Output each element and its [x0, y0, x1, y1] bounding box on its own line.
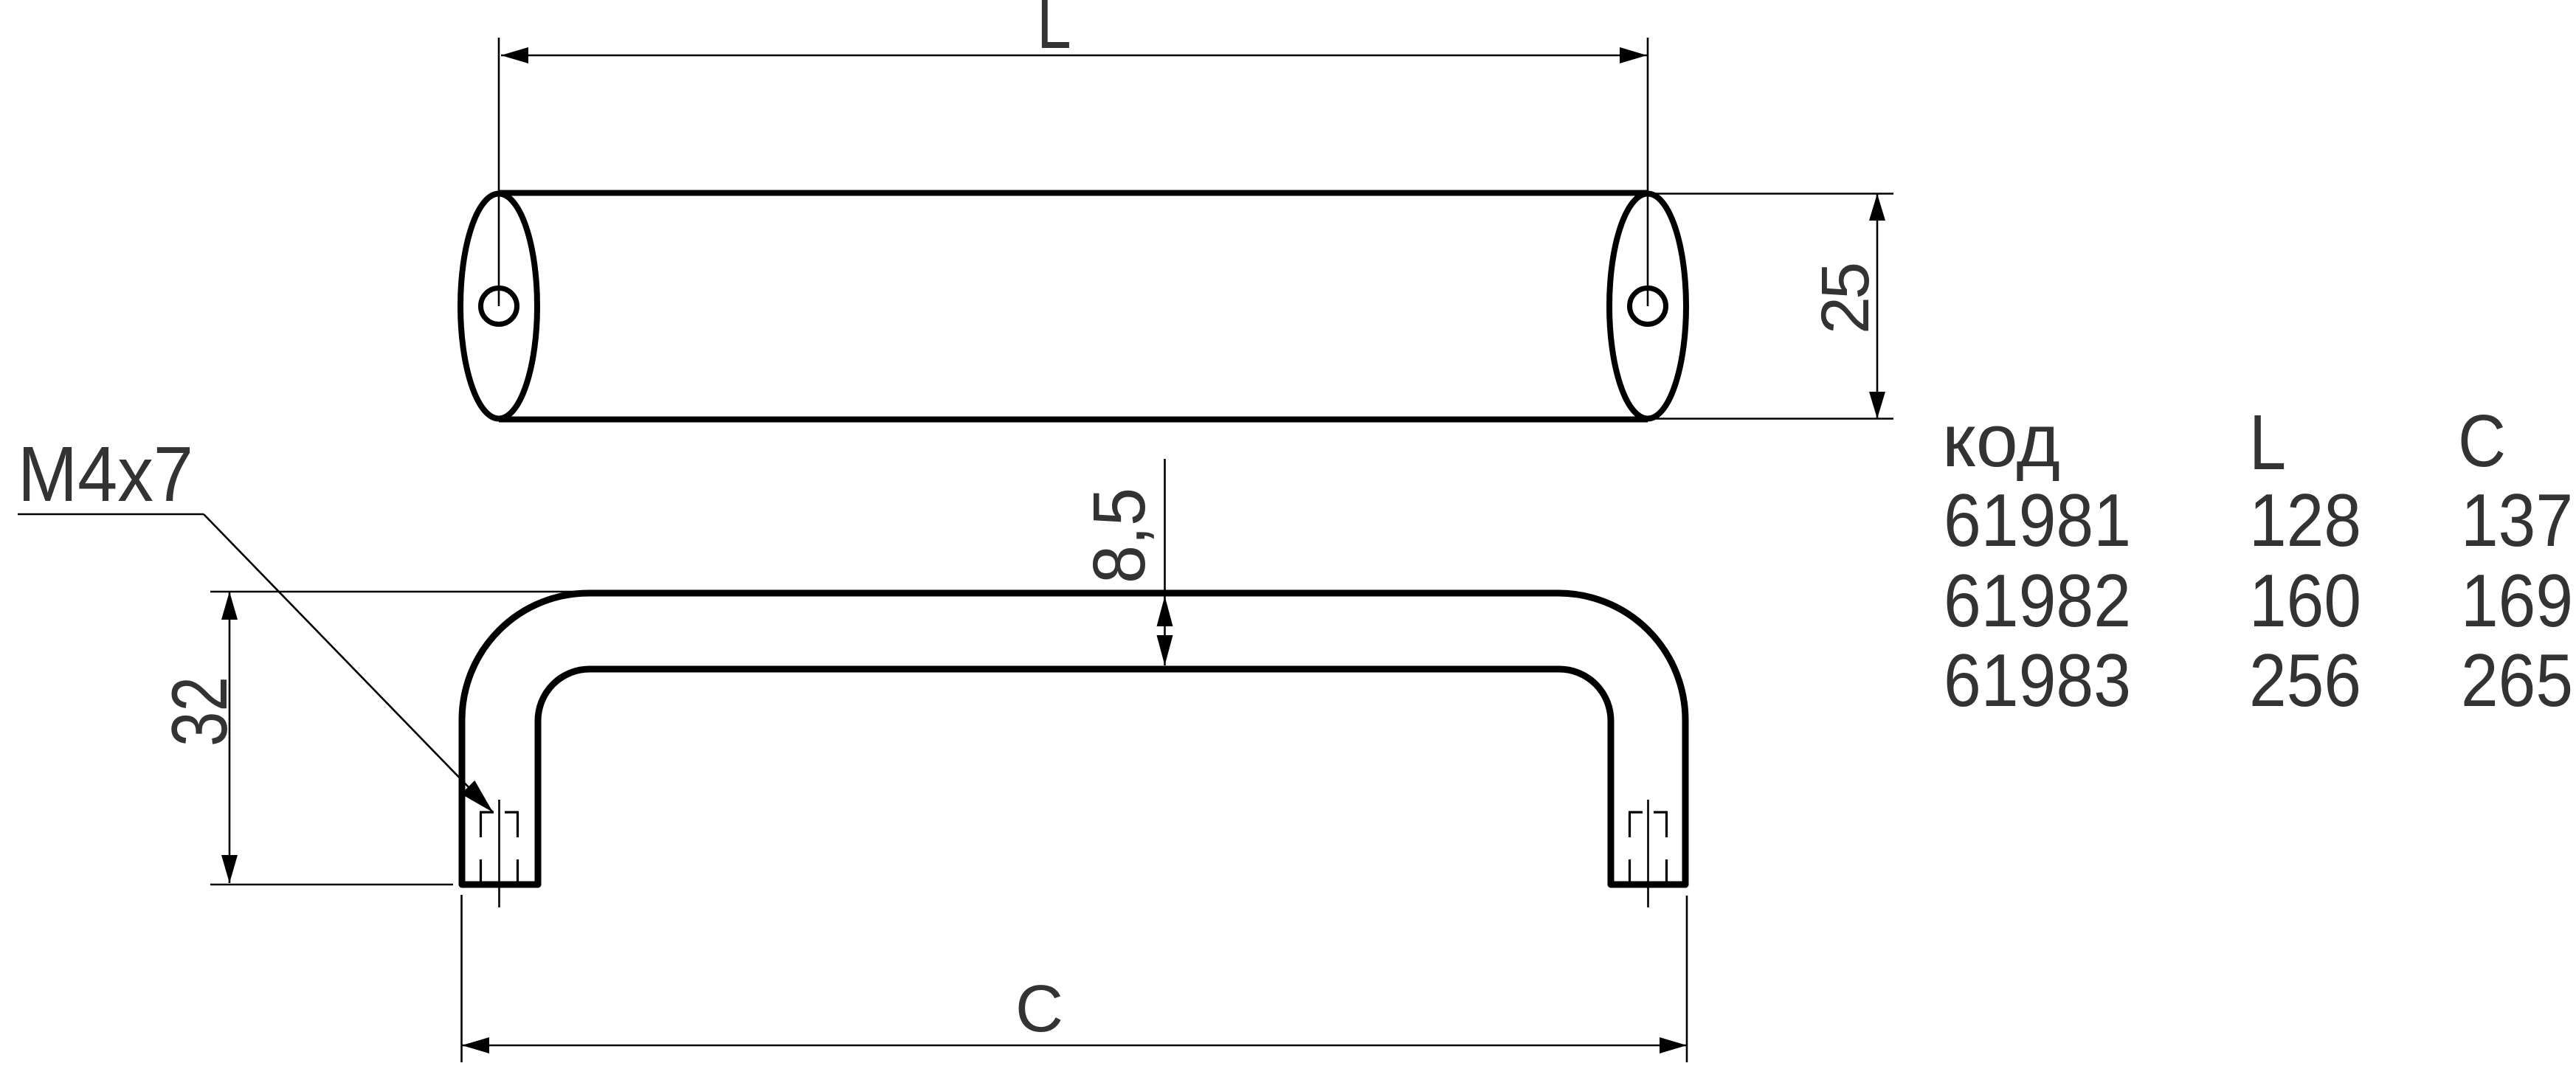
- svg-text:61982: 61982: [1944, 560, 2131, 643]
- svg-text:265: 265: [2461, 640, 2573, 722]
- svg-text:61983: 61983: [1944, 640, 2131, 722]
- svg-text:код: код: [1942, 400, 2060, 482]
- svg-text:L: L: [1037, 0, 1071, 65]
- svg-text:M4x7: M4x7: [18, 431, 193, 518]
- svg-text:128: 128: [2249, 480, 2361, 562]
- svg-text:137: 137: [2461, 480, 2573, 562]
- svg-text:25: 25: [1808, 264, 1883, 334]
- svg-text:C: C: [2458, 401, 2506, 482]
- svg-text:C: C: [1015, 972, 1063, 1046]
- svg-text:160: 160: [2249, 560, 2361, 643]
- svg-text:169: 169: [2461, 560, 2573, 643]
- svg-text:L: L: [2249, 398, 2286, 486]
- svg-text:32: 32: [155, 676, 244, 747]
- svg-text:61981: 61981: [1944, 480, 2131, 562]
- svg-text:8,5: 8,5: [1078, 488, 1161, 584]
- svg-text:256: 256: [2249, 640, 2361, 722]
